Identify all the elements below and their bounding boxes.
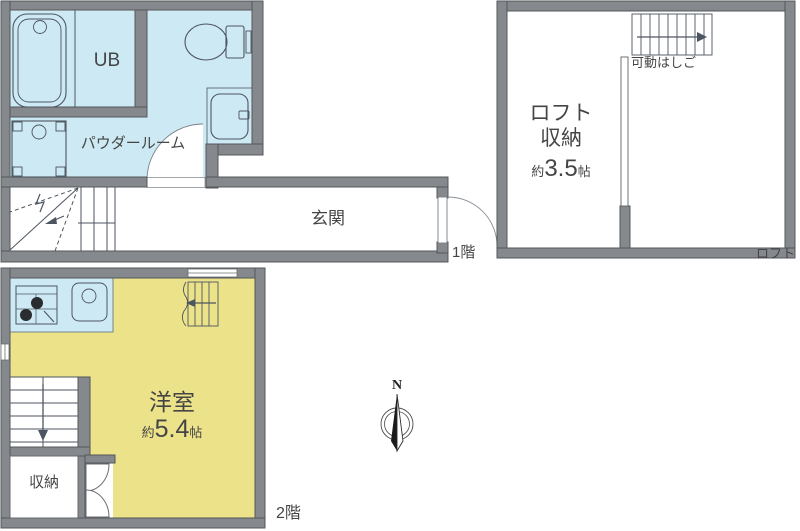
floorplan-canvas	[0, 0, 800, 531]
room-area-value: 5.4	[155, 415, 190, 443]
loft-ladder-icon	[182, 282, 218, 326]
loft-area-label: 約3.5帖	[498, 156, 624, 181]
compass-north-label: N	[389, 379, 405, 394]
loft-divider	[621, 57, 628, 206]
loft-room-subtitle: 収納	[508, 128, 614, 150]
closet-label: 収納	[10, 475, 78, 491]
room-area-unit: 帖	[189, 425, 202, 440]
window-left	[1, 344, 9, 360]
second-floor-label: 2階	[276, 506, 301, 523]
first-floor-staircase	[10, 187, 115, 251]
powder-room-label: パウダールーム	[70, 136, 196, 152]
room-area-prefix: 約	[142, 425, 155, 440]
loft-area-unit: 帖	[578, 164, 591, 179]
entrance-door	[438, 197, 497, 246]
unit-bath-label: UB	[77, 51, 137, 71]
entrance-label: 玄関	[299, 210, 357, 228]
floorplan-page: UB パウダールーム 玄関 1階 可動はしご ロフト 収納 約3.5帖 ロフト …	[0, 0, 800, 531]
loft-room-title: ロフト	[508, 103, 614, 125]
window-top	[188, 269, 237, 277]
loft-area-prefix: 約	[531, 164, 544, 179]
compass-icon	[381, 394, 413, 451]
movable-ladder-icon	[632, 14, 712, 55]
western-room-area-label: 約5.4帖	[109, 416, 235, 442]
loft-floor-label: ロフト	[756, 247, 795, 261]
loft-area-value: 3.5	[544, 155, 577, 182]
first-floor-plan	[1, 1, 497, 262]
movable-ladder-label: 可動はしご	[631, 56, 696, 70]
first-floor-label: 1階	[452, 245, 475, 261]
western-room-label: 洋室	[119, 390, 225, 414]
